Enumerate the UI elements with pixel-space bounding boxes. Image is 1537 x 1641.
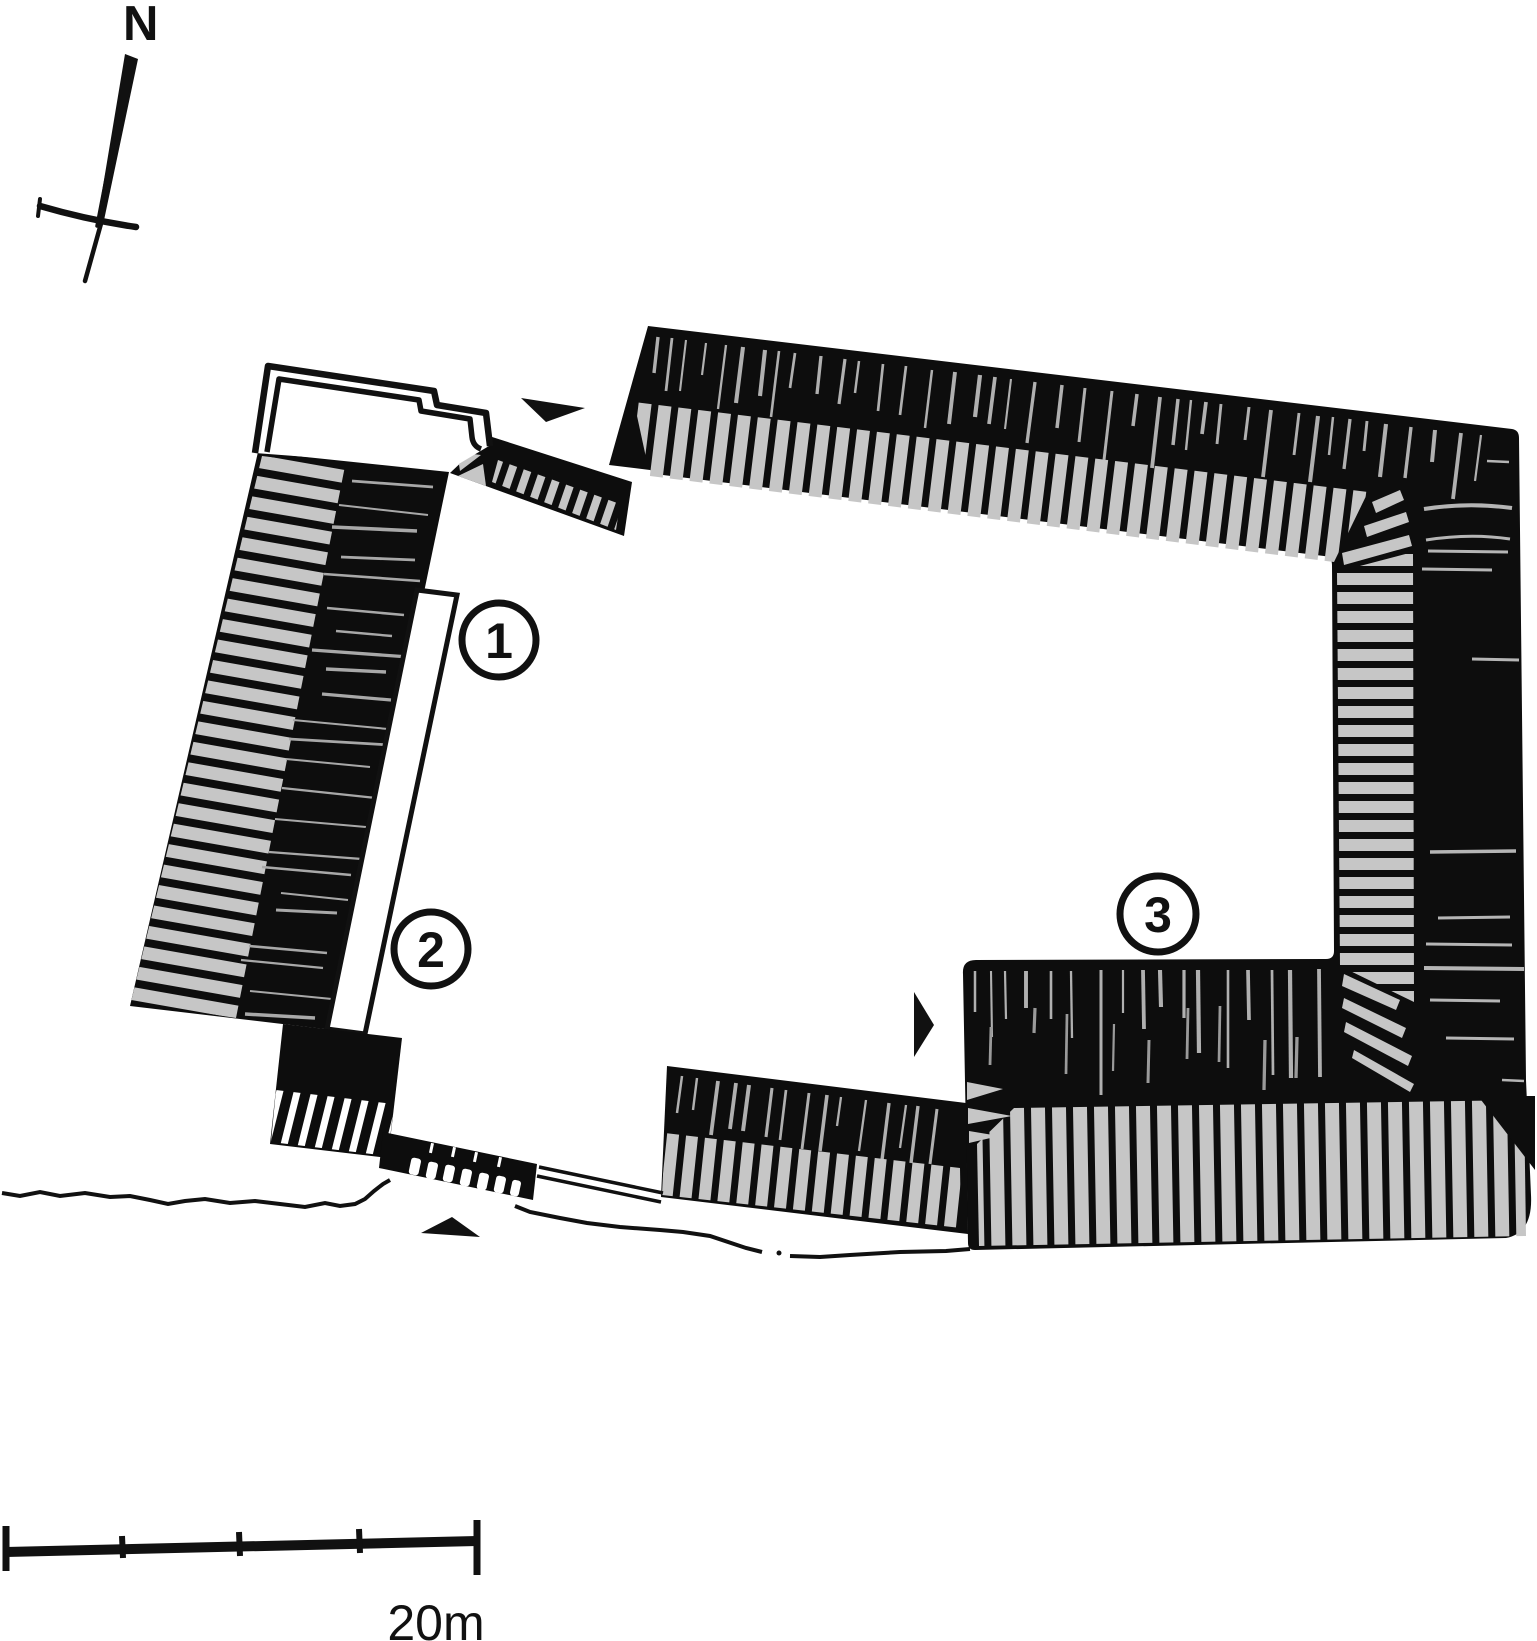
svg-text:2: 2 [417, 922, 445, 978]
svg-text:3: 3 [1144, 887, 1172, 943]
svg-text:1: 1 [485, 613, 513, 669]
svg-text:N: N [123, 0, 158, 51]
svg-text:20m: 20m [387, 1595, 484, 1641]
